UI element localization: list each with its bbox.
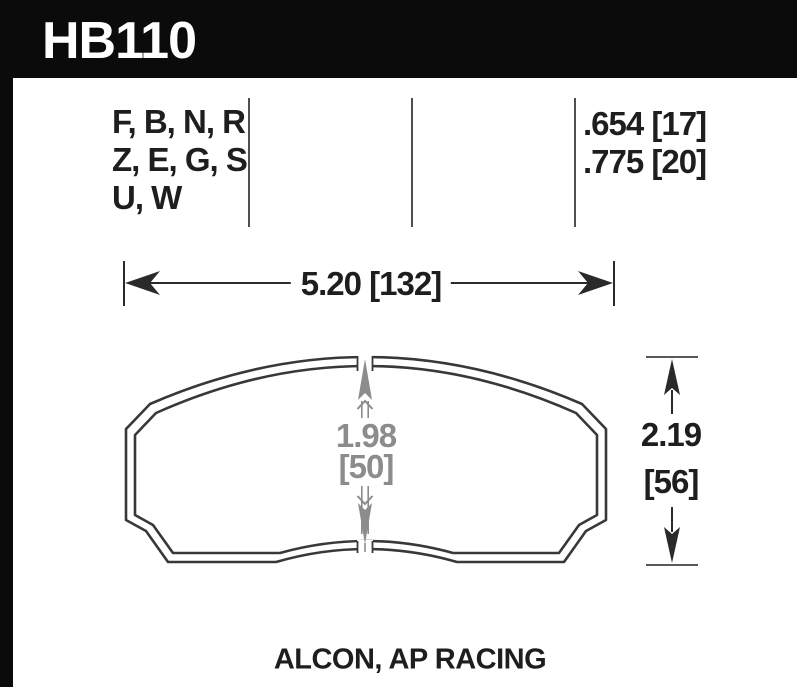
spec-sheet: HB110 F, B, N, R Z, E, G, S U, W .654 [1… bbox=[0, 0, 800, 691]
friction-dim-down-chevron bbox=[358, 496, 373, 504]
brake-pad-diagram bbox=[0, 0, 800, 691]
overall-height-inches-label: 2.19 bbox=[641, 416, 701, 454]
applications-label: ALCON, AP RACING bbox=[274, 644, 546, 677]
height-dim-down-arrowhead bbox=[664, 527, 680, 563]
overall-height-mm-label: [56] bbox=[644, 463, 699, 501]
height-dim-up-arrowhead bbox=[664, 359, 680, 395]
friction-dim-up-chevron bbox=[358, 401, 373, 409]
width-dimension-label: 5.20 [132] bbox=[291, 265, 451, 303]
overall-height-dimension bbox=[646, 357, 698, 565]
friction-height-mm-label: [50] bbox=[339, 448, 394, 486]
friction-dim-down-arrowhead bbox=[358, 503, 372, 544]
